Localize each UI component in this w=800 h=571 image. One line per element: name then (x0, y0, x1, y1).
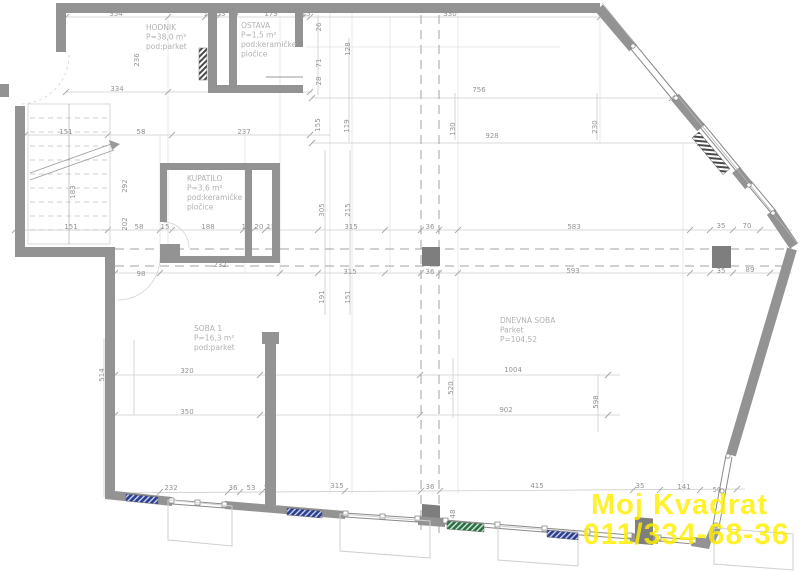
dimension-label: 128 (344, 42, 352, 55)
dimension-label: 53 (247, 484, 256, 492)
dimension-label: 351 (244, 85, 257, 93)
dimension-label: 151 (344, 290, 352, 303)
diagonal-walls (599, 8, 794, 541)
dimension-label: 15 (161, 223, 170, 231)
dimension-label: 89 (746, 266, 755, 274)
dimension-label: 593 (566, 267, 579, 275)
dimension-label: 756 (472, 86, 486, 94)
dimension-label: 315 (330, 482, 343, 490)
dimension-label: 320 (180, 367, 193, 375)
dimension-label: 232 (164, 484, 177, 492)
window-mullions (169, 44, 775, 543)
dimension-label: 48 (449, 510, 457, 519)
dimension-label: 20 (255, 223, 264, 231)
dimension-label: 237 (237, 128, 250, 136)
dimension-label: 191 (318, 290, 326, 303)
stair-direction-arrow (30, 143, 114, 180)
dimension-label: 58 (137, 128, 146, 136)
dimension-label: 53 (217, 10, 226, 18)
dimension-label: 173 (264, 10, 277, 18)
floor-plan-canvas: HODNIKP=38,0 m²pod:parketOSTAVAP=1,5 m²p… (0, 0, 800, 571)
radiator-hatched (199, 48, 207, 80)
dimension-label: 36 (426, 223, 435, 231)
dimension-label: 928 (485, 132, 498, 140)
dimension-label: 36 (426, 268, 435, 276)
dimension-label: 119 (343, 119, 351, 132)
dimension-label: 71 (315, 59, 323, 68)
dimension-label: 514 (98, 368, 106, 382)
dimension-label: 292 (121, 179, 129, 192)
dimension-label: 29 (264, 484, 273, 492)
dimension-label: 98 (137, 270, 146, 278)
diagonal-outer-edge (602, 3, 798, 244)
dimension-label: 26 (315, 22, 323, 31)
room-label: SOBA 1P=16,3 m²pod:parket (194, 324, 235, 352)
tick-marks (12, 14, 773, 496)
dimension-label: 15 (242, 223, 251, 231)
dimension-label: 350 (180, 408, 193, 416)
dimension-label: 315 (343, 268, 356, 276)
dimension-label: 415 (530, 482, 543, 490)
dimension-ticks (12, 14, 773, 496)
windows (172, 44, 776, 544)
room-label: HODNIKP=38,0 m²pod:parket (146, 23, 187, 51)
outer-walls (0, 3, 712, 549)
dimension-label: 330 (443, 10, 456, 18)
dimension-label: 305 (318, 203, 326, 216)
dimension-label: 902 (499, 406, 512, 414)
dimension-label: 598 (592, 395, 600, 408)
dimension-label: 188 (201, 223, 214, 231)
dimension-label: 236 (133, 53, 141, 67)
dimension-label: 583 (567, 223, 580, 231)
room-label: DNEVNA SOBAParketP=104,52 (500, 316, 556, 344)
dimension-label: 334 (110, 85, 124, 93)
dimension-label: 70 (743, 222, 752, 230)
dimension-label: 151 (59, 128, 72, 136)
dimension-label: 15 (230, 10, 239, 18)
dimension-label: 15 (302, 10, 311, 18)
dimension-label: 1004 (504, 366, 522, 374)
dimension-lines (15, 15, 792, 497)
dimension-label: 315 (344, 223, 357, 231)
dimension-labels: 3541553151731533023626712812833435118329… (59, 10, 754, 518)
dimension-label: 354 (109, 10, 123, 18)
dimension-label: 58 (135, 223, 144, 231)
dimension-label: 28 (315, 77, 323, 86)
dimension-label: 202 (121, 217, 129, 230)
floor-plan-drawing: HODNIKP=38,0 m²pod:parketOSTAVAP=1,5 m²p… (0, 0, 800, 571)
dimension-label: 35 (717, 222, 726, 230)
dimension-label: 36 (229, 484, 238, 492)
room-label: OSTAVAP=1,5 m²pod:keramičkepločice (241, 21, 297, 59)
dimension-label: 15 (204, 10, 213, 18)
dimension-label: 155 (314, 118, 322, 131)
room-label: KUPATILOP=3,6 m²pod:keramičkepločice (187, 174, 243, 212)
dimension-label: 183 (69, 185, 77, 198)
dimension-label: 36 (426, 483, 435, 491)
dimension-label: 35 (717, 267, 726, 275)
watermark-phone: 011/334-68-36 (583, 518, 790, 552)
dimension-label: 215 (344, 203, 352, 216)
dimension-label: 151 (64, 223, 77, 231)
interior-walls (160, 13, 303, 505)
dimension-label: 130 (449, 122, 457, 135)
radiators (126, 48, 730, 540)
dimension-label: 15 (267, 223, 276, 231)
dimension-label: 520 (447, 381, 455, 394)
dimension-label: 230 (591, 120, 599, 133)
dimension-label: 232 (213, 261, 226, 269)
